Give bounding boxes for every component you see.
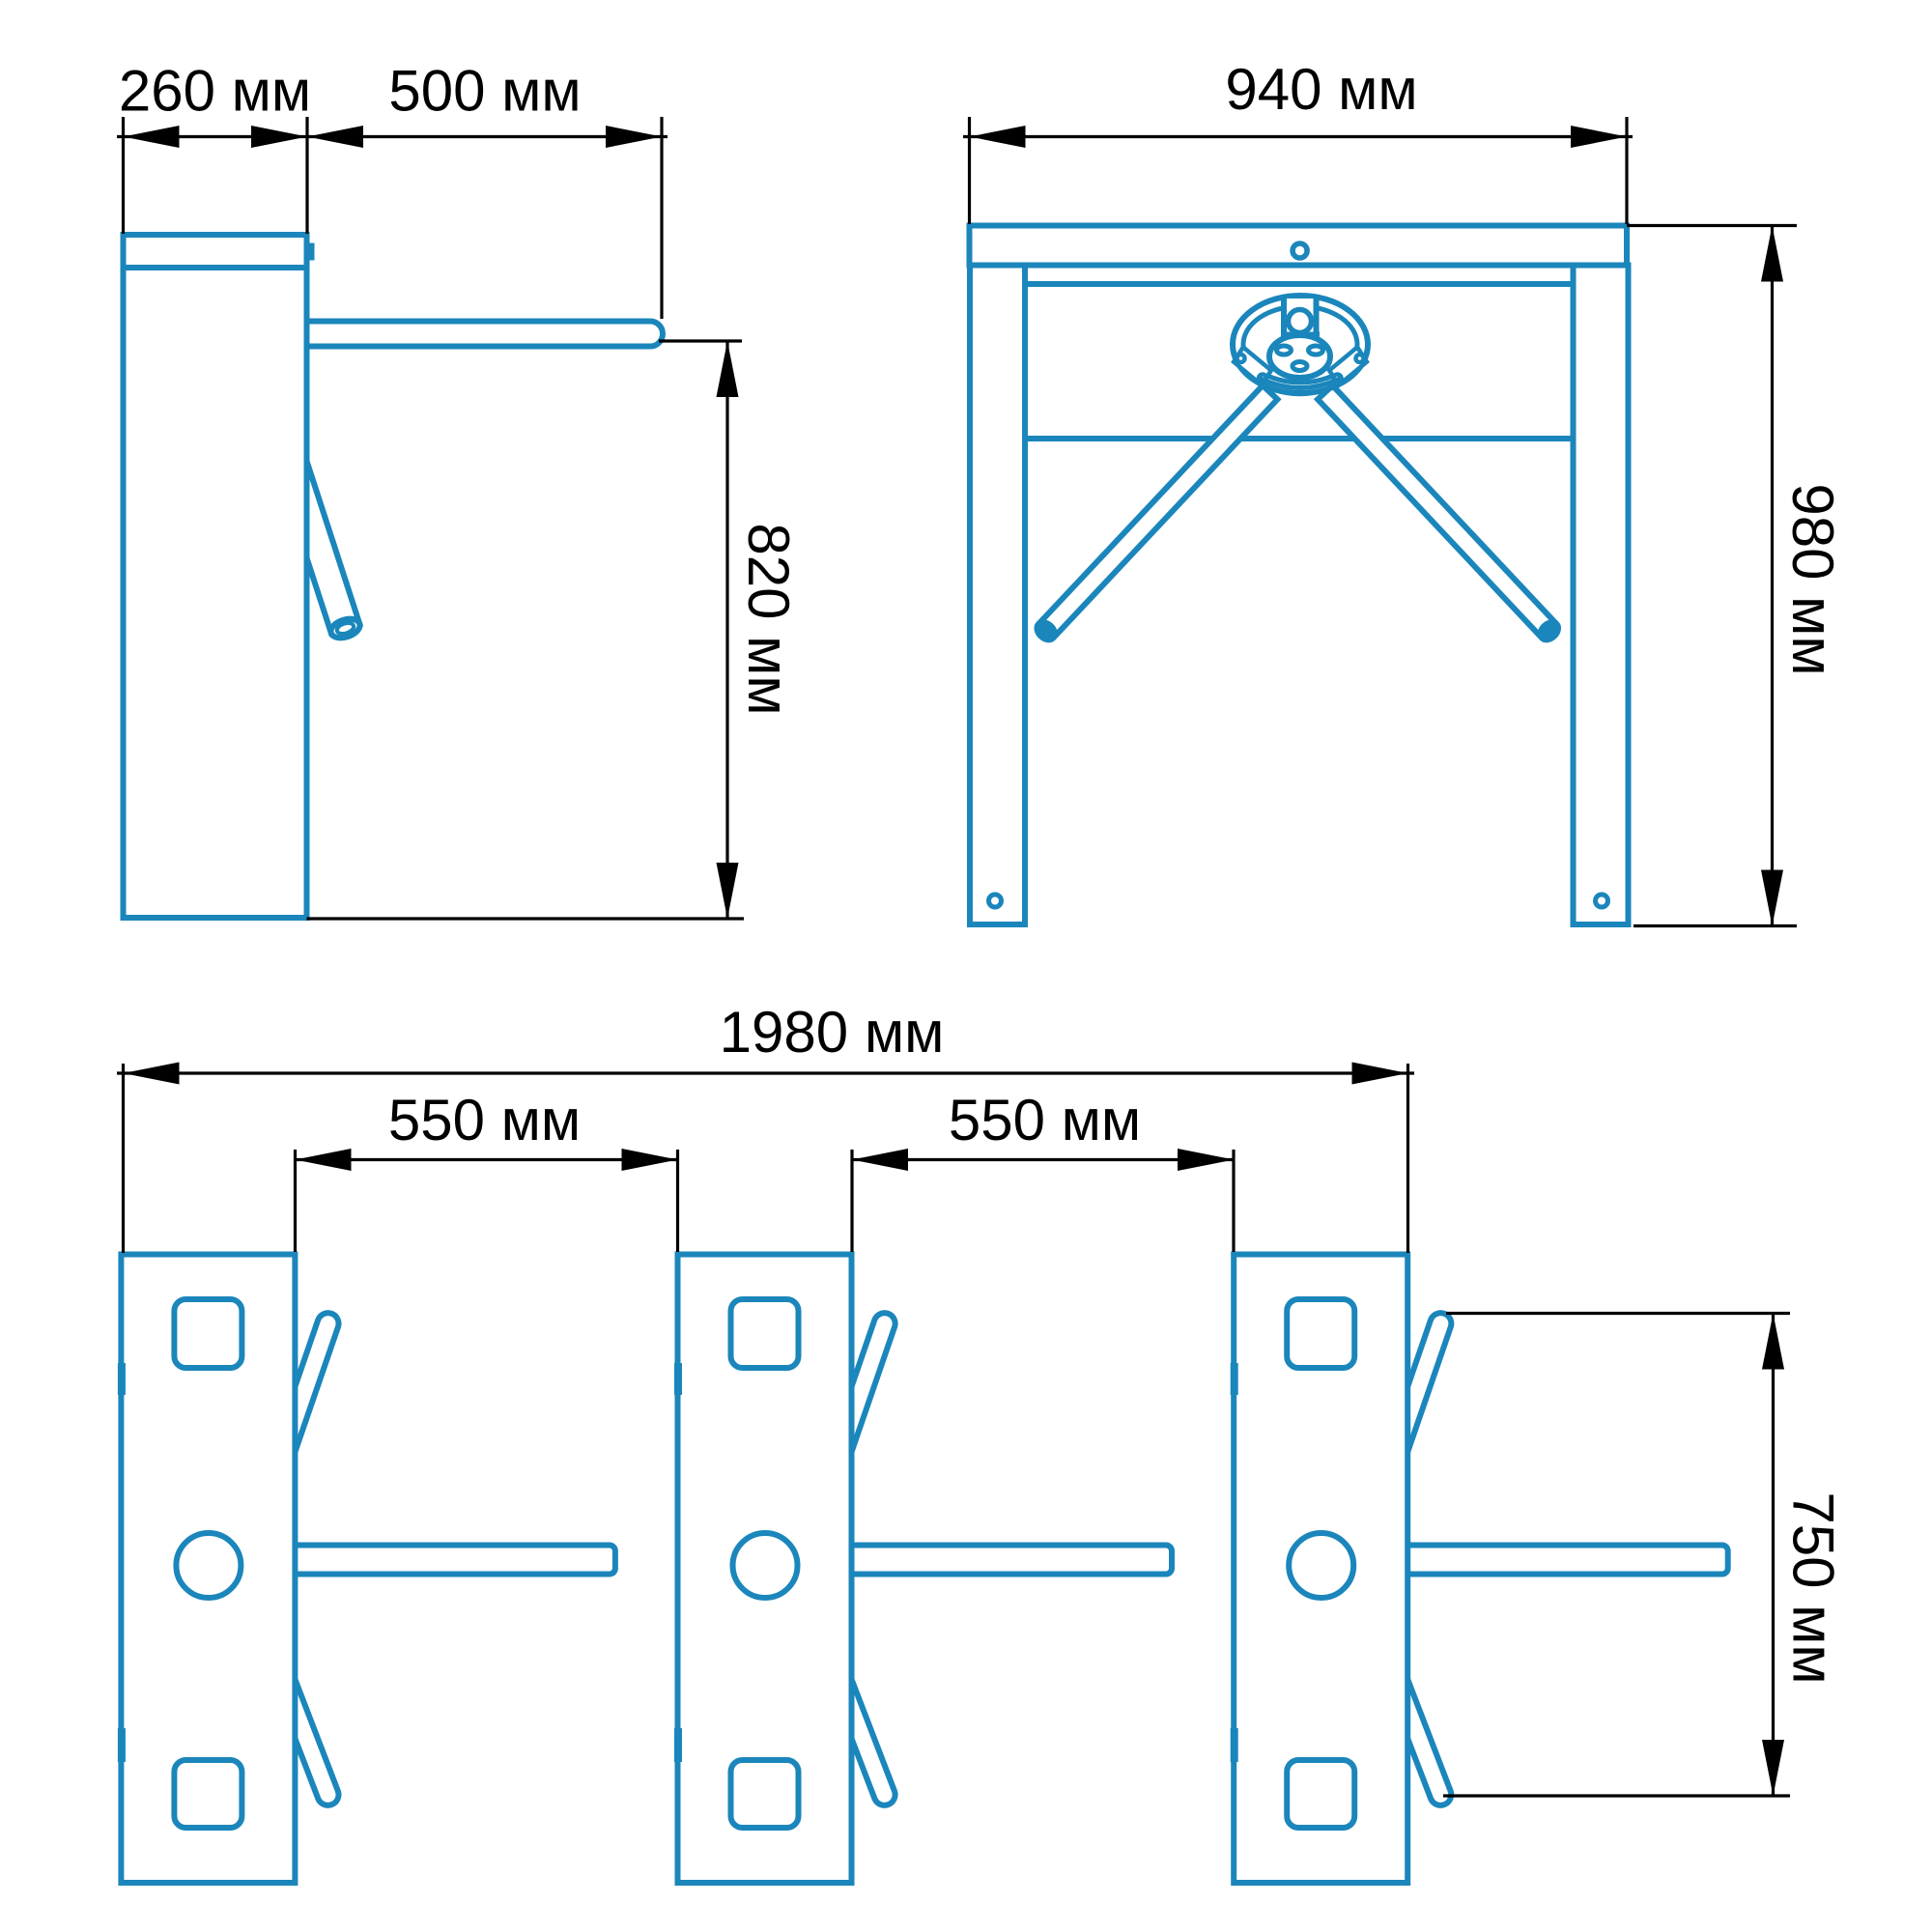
svg-text:260 мм: 260 мм xyxy=(119,59,311,124)
svg-text:500 мм: 500 мм xyxy=(388,59,581,124)
svg-text:940 мм: 940 мм xyxy=(1225,57,1417,122)
svg-text:1980 мм: 1980 мм xyxy=(720,1000,945,1065)
svg-text:550 мм: 550 мм xyxy=(949,1088,1141,1152)
svg-text:750 мм: 750 мм xyxy=(1781,1492,1846,1684)
svg-text:980 мм: 980 мм xyxy=(1780,483,1845,675)
svg-text:550 мм: 550 мм xyxy=(388,1088,581,1152)
svg-text:820 мм: 820 мм xyxy=(736,523,801,715)
